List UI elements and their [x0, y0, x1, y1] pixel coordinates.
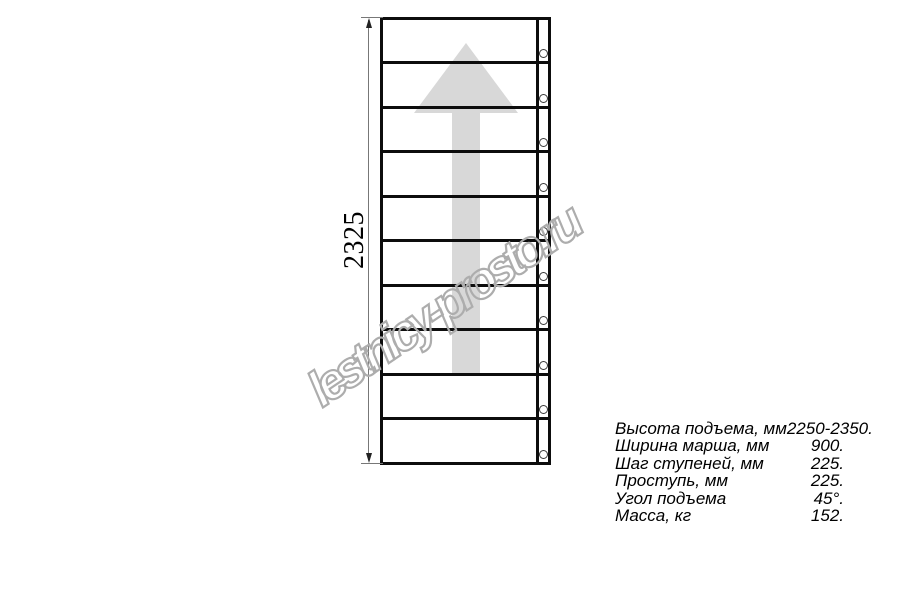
spec-value: 225. — [811, 455, 844, 472]
spec-value: 2250-2350. — [787, 420, 873, 437]
tread-circle — [539, 183, 548, 192]
tread-circle — [539, 450, 548, 459]
step-line — [380, 150, 551, 153]
tread-circle — [539, 405, 548, 414]
spec-label: Высота подъема, мм — [615, 420, 787, 437]
dimension-extension-tick-top — [361, 17, 383, 18]
spec-label: Масса, кг — [615, 507, 691, 524]
staircase-drawing-page: 2325 lestnicy-prosto.ru Высота подъема, … — [0, 0, 900, 600]
spec-row: Ширина марша, мм 900. — [615, 437, 844, 454]
step-line — [380, 373, 551, 376]
spec-value: 225. — [811, 472, 844, 489]
dimension-extension-tick-bottom — [361, 463, 383, 464]
spec-label: Ширина марша, мм — [615, 437, 769, 454]
tread-circle — [539, 94, 548, 103]
dimension-arrow-up-icon — [366, 18, 372, 28]
spec-row: Угол подъема 45°. — [615, 490, 844, 507]
spec-value: 152. — [811, 507, 844, 524]
step-line — [380, 417, 551, 420]
step-line — [380, 195, 551, 198]
spec-value: 900. — [811, 437, 844, 454]
spec-row: Высота подъема, мм 2250-2350. — [615, 420, 844, 437]
spec-row: Шаг ступеней, мм 225. — [615, 455, 844, 472]
dimension-label: 2325 — [339, 211, 371, 269]
spec-label: Угол подъема — [615, 490, 726, 507]
spec-row: Масса, кг 152. — [615, 507, 844, 524]
spec-label: Проступь, мм — [615, 472, 728, 489]
step-line — [380, 61, 551, 64]
tread-circle — [539, 361, 548, 370]
specs-table: Высота подъема, мм 2250-2350. Ширина мар… — [615, 420, 844, 524]
spec-row: Проступь, мм 225. — [615, 472, 844, 489]
spec-value: 45°. — [814, 490, 844, 507]
spec-label: Шаг ступеней, мм — [615, 455, 764, 472]
step-line — [380, 106, 551, 109]
dimension-arrow-down-icon — [366, 453, 372, 463]
